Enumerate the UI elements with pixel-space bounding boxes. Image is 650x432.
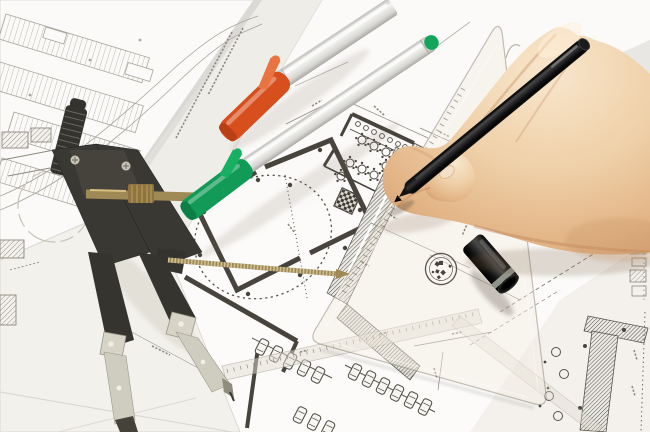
photo-canvas: A hand drafting with a black pen on arch… bbox=[0, 0, 650, 432]
drafting-scene: A hand drafting with a black pen on arch… bbox=[0, 0, 650, 432]
